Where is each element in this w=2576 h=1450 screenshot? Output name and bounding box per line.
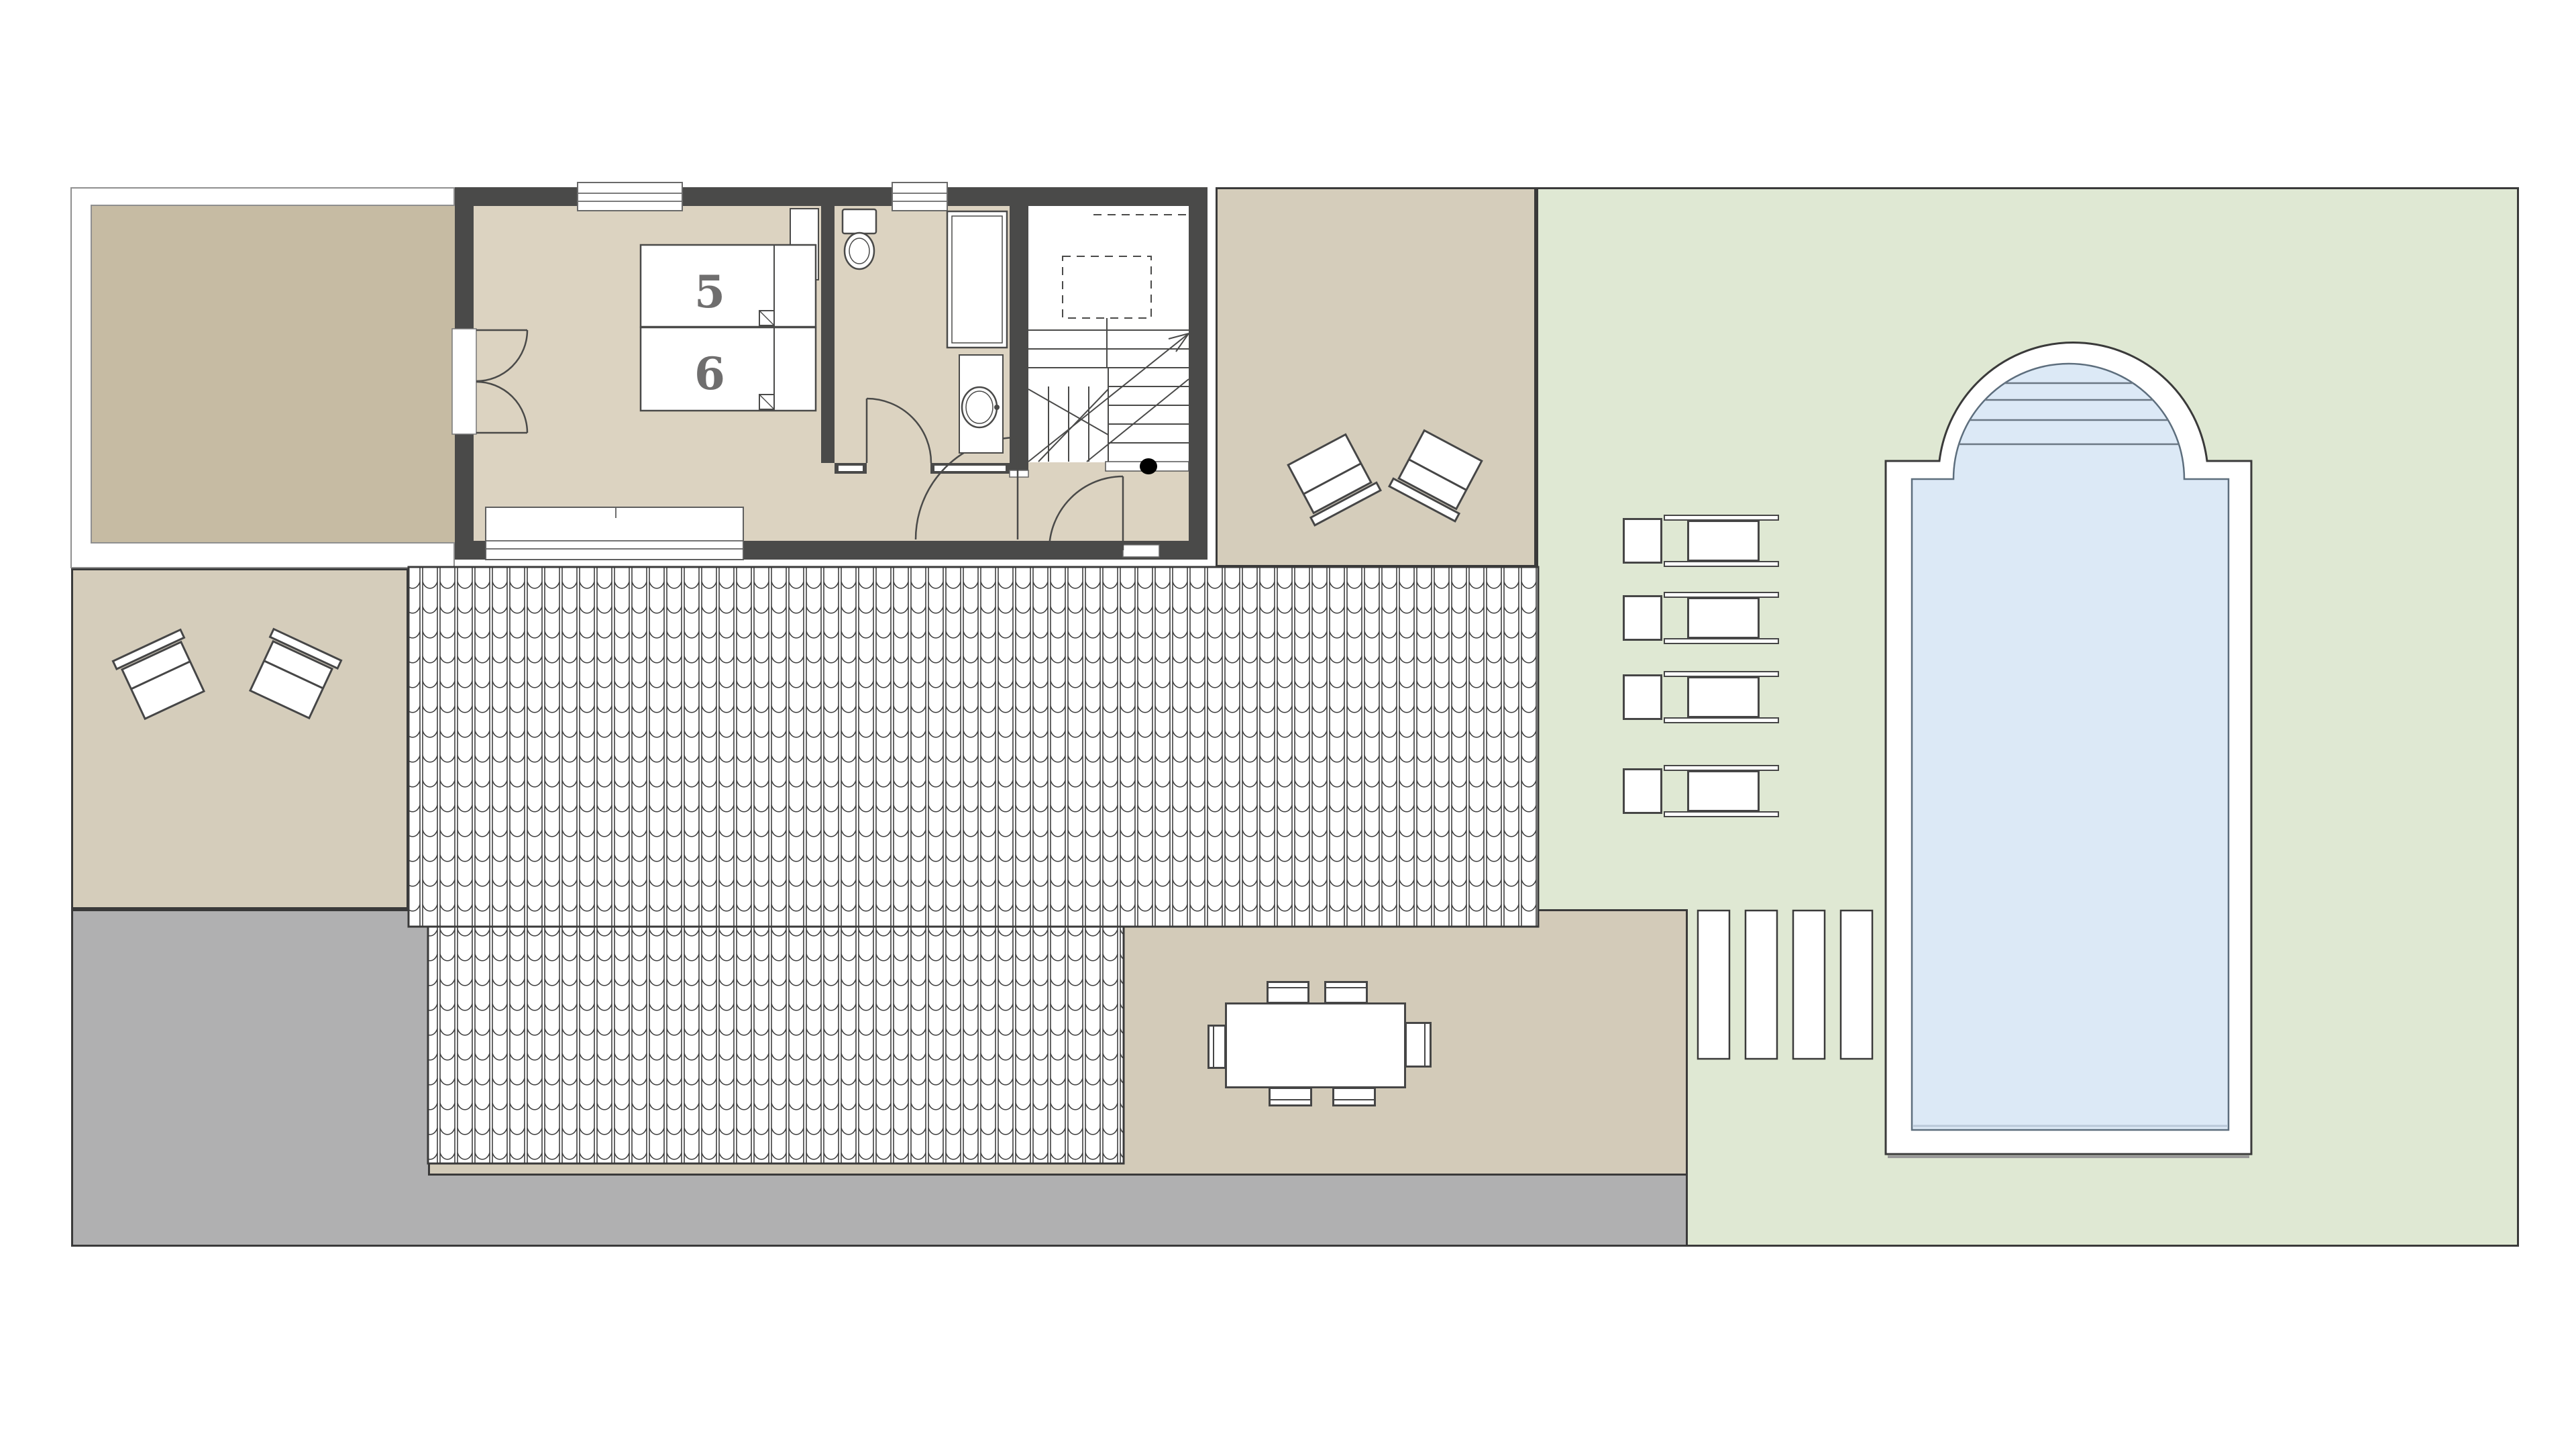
chair-backrest — [1326, 983, 1366, 988]
bed-5-label: 5 — [688, 270, 731, 314]
lintel-mark — [934, 466, 1006, 471]
toilet-symbol — [845, 233, 874, 269]
site-plan: 5 6 — [0, 0, 2576, 1450]
balcony-door-arc — [476, 330, 527, 381]
wall-bedroom-bathroom — [821, 206, 835, 463]
terrace-left — [71, 568, 409, 909]
wall-stub — [835, 463, 867, 474]
bed-corner-fold — [759, 395, 774, 409]
windows — [452, 183, 1159, 560]
balcony-floor — [91, 205, 457, 543]
shower-symbol — [947, 211, 1007, 348]
lounger-rail — [1664, 638, 1779, 644]
door-threshold — [1123, 545, 1159, 557]
window — [892, 183, 947, 211]
dining-chair — [1269, 1087, 1312, 1106]
exterior-walls — [455, 187, 1207, 560]
vanity-counter — [959, 355, 1003, 453]
wall-stub — [930, 463, 1010, 474]
chair-backrest — [1269, 983, 1307, 988]
lounger-backrest — [1623, 768, 1662, 814]
dining-chair — [1405, 1022, 1432, 1068]
interior-floor — [474, 206, 1189, 541]
bathroom-fixtures — [843, 209, 1007, 453]
roof-upper — [409, 567, 1538, 927]
tap-symbol — [994, 405, 1000, 410]
sun-lounger — [1623, 515, 1779, 567]
chair-backrest — [1334, 1099, 1374, 1104]
lounger-seat — [1687, 770, 1760, 812]
lounger-backrest — [1623, 518, 1662, 564]
balcony-door-arc — [476, 382, 527, 433]
toilet-tank-symbol — [843, 209, 876, 234]
sun-lounger — [1623, 592, 1779, 644]
window — [578, 183, 682, 211]
lounger-seat — [1687, 520, 1760, 562]
chair-backrest — [1210, 1027, 1214, 1067]
lintel-mark — [839, 466, 863, 471]
wall-bathroom-stairs — [1010, 206, 1028, 476]
dining-chair — [1207, 1025, 1226, 1069]
lounger-rail — [1664, 811, 1779, 817]
stair-entry-strip — [1106, 462, 1189, 471]
dining-chair — [1332, 1087, 1376, 1106]
lounger-seat — [1687, 597, 1760, 639]
shelf — [790, 209, 818, 280]
lounger-seat — [1687, 676, 1760, 718]
direction-arrowhead — [1169, 333, 1189, 339]
dining-chair — [1324, 981, 1368, 1004]
stair-start-dot — [1140, 458, 1157, 474]
staircase — [1028, 215, 1189, 462]
door-jamb — [1010, 470, 1028, 477]
lounger-backrest — [1623, 595, 1662, 641]
bed-corner-fold — [759, 311, 774, 325]
stair-void-dashed — [1063, 256, 1151, 318]
doors — [476, 330, 1123, 550]
window-bench — [486, 507, 743, 560]
winder-line — [1038, 389, 1108, 462]
bed-6-label: 6 — [688, 352, 731, 396]
exterior-door-arc — [1049, 476, 1123, 550]
sun-lounger — [1623, 765, 1779, 817]
bathroom-door-arc — [867, 399, 931, 463]
stairwell-floor — [1028, 206, 1189, 462]
stair-direction-line — [1028, 333, 1189, 462]
terrace-right — [1216, 187, 1536, 567]
winder-line — [1028, 389, 1108, 435]
dining-table — [1225, 1002, 1406, 1088]
hall-door-arc — [916, 437, 1018, 539]
direction-arrowhead — [1176, 333, 1189, 352]
chair-backrest — [1271, 1099, 1310, 1104]
sun-lounger — [1623, 671, 1779, 723]
chair-backrest — [1424, 1024, 1430, 1066]
terrace-dining — [428, 909, 1688, 1176]
dining-chair — [1267, 981, 1309, 1004]
lounger-rail — [1664, 717, 1779, 723]
lounger-backrest — [1623, 674, 1662, 720]
sink-symbol — [962, 387, 997, 427]
lounger-rail — [1664, 561, 1779, 567]
